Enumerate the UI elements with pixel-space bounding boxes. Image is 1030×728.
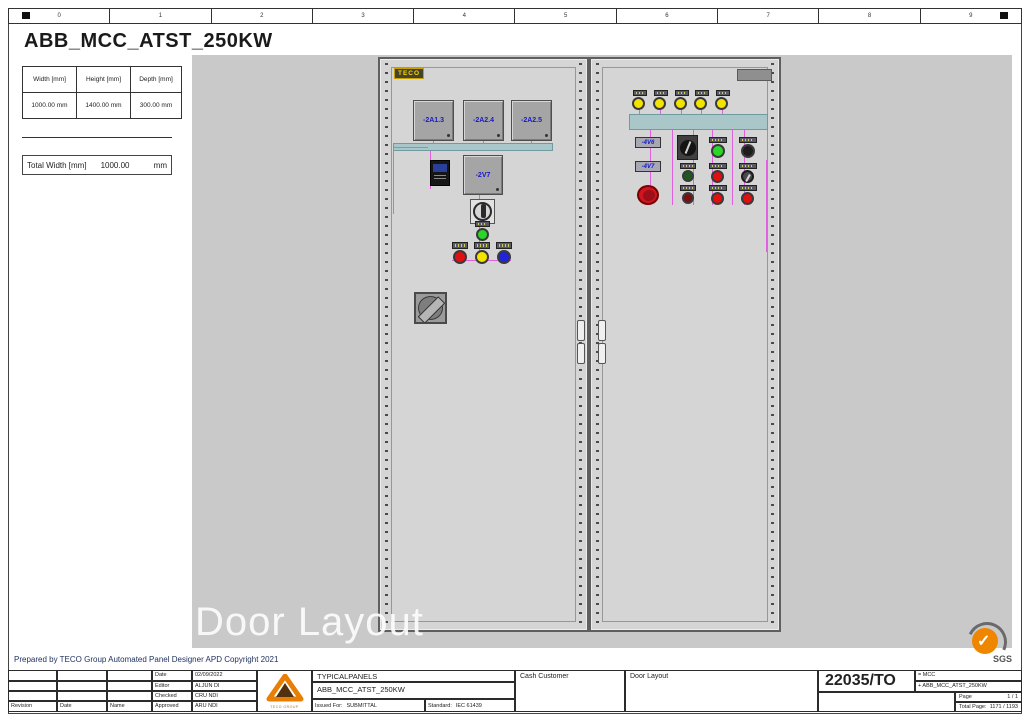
ruler-cell: 3 — [313, 9, 414, 23]
revision-column-header: Name — [107, 701, 152, 712]
page-value: 1 / 1 — [1007, 694, 1018, 700]
total-width-unit: mm — [154, 161, 167, 170]
total-width-label: Total Width [mm] — [27, 161, 87, 170]
meta-value: CRU NDI — [192, 691, 257, 701]
drawing-title: ABB_MCC_ATST_250KW — [312, 682, 515, 699]
selector-switch — [677, 135, 698, 160]
label-plate — [695, 90, 709, 96]
label-plate — [680, 185, 696, 191]
ruler-end-marker — [22, 12, 30, 19]
total-width-box: Total Width [mm] 1000.00 mm — [22, 155, 172, 175]
wire-line — [732, 130, 733, 205]
sgs-label: SGS — [993, 654, 1012, 664]
revision-cell — [57, 681, 107, 691]
red-pushbutton — [741, 192, 754, 205]
dim-header-width: Width [mm] — [23, 67, 77, 93]
revision-cell — [107, 691, 152, 701]
label-plate — [739, 137, 757, 143]
yellow-pilot-light — [674, 97, 687, 110]
watermark-text: Door Layout — [195, 600, 424, 645]
issued-for-cell: Issued For: SUBMITTAL — [312, 699, 425, 712]
meta-label: Checked — [152, 691, 192, 701]
device-label-plate: -4V6 — [635, 137, 661, 148]
multimeter-device — [430, 160, 450, 186]
revision-column-header: Date — [57, 701, 107, 712]
device-box: -2A2.5 — [511, 100, 552, 141]
wire-line — [672, 130, 673, 205]
sgs-check-icon — [972, 628, 998, 654]
device-box: -2A2.4 — [463, 100, 504, 141]
label-plate — [475, 221, 490, 227]
yellow-pilot-light — [632, 97, 645, 110]
green-pilot-light — [711, 144, 725, 158]
dim-header-depth: Depth [mm] — [131, 67, 181, 93]
yellow-pilot-light — [653, 97, 666, 110]
red-pilot-light — [453, 250, 467, 264]
logo-caption: TECO GROUP — [258, 705, 311, 709]
standard-cell: Standard: IEC 61439 — [425, 699, 515, 712]
ruler-cell: 8 — [819, 9, 920, 23]
page-label: Page — [959, 694, 972, 700]
meta-value: ALJUN DI — [192, 681, 257, 691]
small-selector-switch — [741, 170, 754, 183]
ruler-cell: 5 — [515, 9, 616, 23]
meta-value: ARU NDI — [192, 701, 257, 712]
yellow-pilot-light — [475, 250, 489, 264]
label-plate — [633, 90, 647, 96]
total-page-value: 1171 / 1193 — [990, 704, 1018, 710]
revision-cell — [107, 670, 152, 681]
screw-strip — [771, 63, 774, 626]
left-door-panel: TECO -2A1.3 -2A2.4 -2A2.5 -2V7 — [378, 57, 589, 632]
meta-value: 02/09/2022 — [192, 670, 257, 681]
issued-for-value: SUBMITTAL — [347, 703, 377, 709]
revision-cell — [8, 691, 57, 701]
red-pushbutton — [711, 192, 724, 205]
sgs-certification-logo: SGS — [964, 622, 1012, 664]
door-handle — [598, 343, 606, 364]
label-plate — [654, 90, 668, 96]
label-plate — [680, 163, 696, 169]
revision-cell — [8, 670, 57, 681]
wire-line — [766, 160, 767, 252]
green-pilot-light — [476, 228, 489, 241]
yellow-pilot-light — [715, 97, 728, 110]
device-box: -2V7 — [463, 155, 503, 195]
wire-line — [393, 147, 394, 214]
teco-group-logo-icon — [263, 674, 307, 702]
teco-brand-plate: TECO — [394, 68, 424, 79]
dim-value-depth: 300.00 mm — [131, 93, 181, 118]
standard-value: IEC 61439 — [456, 703, 482, 709]
black-pushbutton — [741, 144, 755, 158]
label-plate — [675, 90, 689, 96]
yellow-pilot-light — [694, 97, 707, 110]
wire-line — [393, 147, 428, 148]
issued-for-label: Issued For: — [315, 703, 343, 709]
function-ref: = MCC — [915, 670, 1022, 681]
drawing-number: 22035/TO — [818, 670, 915, 692]
label-plate — [739, 163, 757, 169]
label-plate — [452, 242, 468, 249]
ruler-end-marker — [1000, 12, 1008, 19]
column-ruler: 0 1 2 3 4 5 6 7 8 9 — [8, 8, 1022, 24]
disconnect-switch — [414, 292, 447, 324]
label-plate — [739, 185, 757, 191]
label-plate — [709, 185, 727, 191]
total-page-cell: Total Page: 1171 / 1193 — [955, 702, 1022, 712]
door-handle — [577, 343, 585, 364]
dark-red-pushbutton — [682, 192, 694, 204]
device-label-plate: -4V7 — [635, 161, 661, 172]
revision-cell — [57, 670, 107, 681]
total-width-value: 1000.00 — [101, 161, 130, 170]
red-pushbutton — [711, 170, 724, 183]
device-box: -2A1.3 — [413, 100, 454, 141]
screw-strip — [385, 63, 388, 626]
ruler-cell: 1 — [110, 9, 211, 23]
label-plate — [474, 242, 490, 249]
label-plate — [709, 137, 727, 143]
teco-group-logo-cell: TECO GROUP — [257, 670, 312, 712]
door-handle — [577, 320, 585, 341]
customer-cell: Cash Customer — [515, 670, 625, 712]
door-handle — [598, 320, 606, 341]
ruler-cell: 6 — [617, 9, 718, 23]
prepared-by-note: Prepared by TECO Group Automated Panel D… — [14, 655, 278, 664]
revision-cell — [8, 681, 57, 691]
total-page-label: Total Page: — [959, 704, 987, 710]
wiring-duct — [629, 114, 768, 130]
divider-line — [22, 137, 172, 138]
red-socket — [637, 185, 659, 205]
ruler-cell: 4 — [414, 9, 515, 23]
dark-green-pushbutton — [682, 170, 694, 182]
label-plate — [496, 242, 512, 249]
revision-cell — [107, 681, 152, 691]
label-plate — [709, 163, 727, 169]
standard-label: Standard: — [428, 703, 452, 709]
revision-column-header: Revision — [8, 701, 57, 712]
revision-cell — [57, 691, 107, 701]
label-plate — [716, 90, 730, 96]
ruler-cell: 7 — [718, 9, 819, 23]
page-title: ABB_MCC_ATST_250KW — [24, 30, 273, 53]
page-cell: Page 1 / 1 — [955, 692, 1022, 702]
empty-cell — [818, 692, 955, 712]
sheet-name-cell: Door Layout — [625, 670, 818, 712]
dimensions-table: Width [mm] Height [mm] Depth [mm] 1000.0… — [22, 66, 182, 119]
meta-label: Date — [152, 670, 192, 681]
dim-header-height: Height [mm] — [77, 67, 131, 93]
meta-label: Approved — [152, 701, 192, 712]
ruler-cell: 2 — [212, 9, 313, 23]
right-door-panel: -4V6 -4V7 — [589, 57, 781, 632]
project-name: TYPICALPANELS — [312, 670, 515, 682]
dim-value-width: 1000.00 mm — [23, 93, 77, 118]
drawing-canvas: TECO -2A1.3 -2A2.4 -2A2.5 -2V7 — [192, 55, 1012, 648]
rotary-handle — [481, 204, 486, 218]
panel-drawing-sheet: { "palette": { "canvas_gray": "#c9c9c9",… — [0, 0, 1030, 728]
blue-pilot-light — [497, 250, 511, 264]
meta-label: Editor — [152, 681, 192, 691]
door-nameplate — [737, 69, 772, 81]
dim-value-height: 1400.00 mm — [77, 93, 131, 118]
location-ref: + ABB_MCC_ATST_250KW — [915, 681, 1022, 692]
